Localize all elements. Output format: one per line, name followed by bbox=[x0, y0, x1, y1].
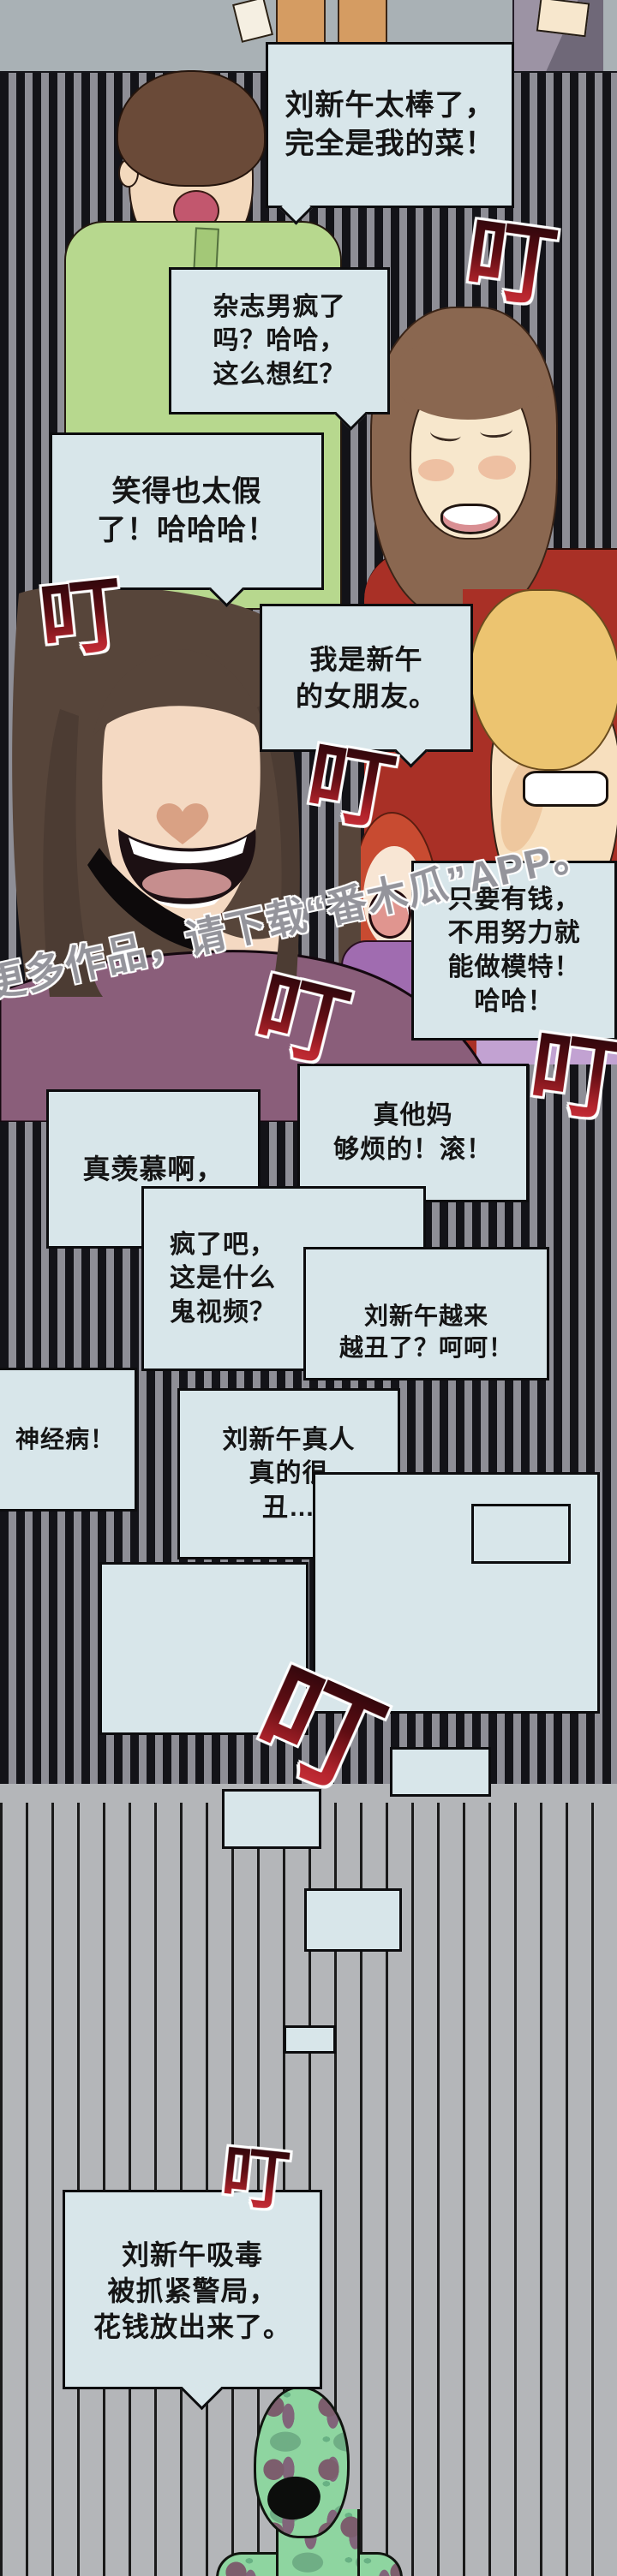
bubble-text-line: 刘新午吸毒 bbox=[122, 2237, 263, 2273]
bubble-text-line: 够烦的！滚！ bbox=[333, 1133, 493, 1167]
bubble-text-line: 越丑了？呵呵！ bbox=[339, 1333, 513, 1364]
ding-stamp-7: 叮 bbox=[219, 2141, 292, 2215]
speech-bubble-10: 神经病！ bbox=[0, 1368, 137, 1512]
ding-stamp-2: 叮 bbox=[36, 573, 127, 664]
blonde-man-smile bbox=[523, 771, 608, 807]
bubble-text-line: 了！哈哈哈！ bbox=[97, 511, 277, 550]
speech-bubble-4: 我是新午 的女朋友。 bbox=[260, 604, 473, 752]
ding-stamp-3: 叮 bbox=[301, 736, 400, 836]
wavy-man-left-blush bbox=[418, 459, 454, 481]
bubble-text-line: 刘新午太棒了， bbox=[285, 86, 495, 125]
empty-bubble-small-1 bbox=[390, 1747, 491, 1797]
bubble-text-line: 这是什么 bbox=[170, 1261, 276, 1296]
wavy-man-right-blush bbox=[478, 456, 516, 480]
green-man-hair bbox=[117, 70, 266, 187]
bubble-text-line: 真羡慕啊， bbox=[82, 1151, 224, 1187]
big-face-tongue bbox=[142, 869, 231, 898]
bubble-text-line: 不用努力就 bbox=[448, 916, 581, 951]
speech-bubble-19: 刘新午吸毒 被抓紧警局， 花钱放出来了。 bbox=[63, 2190, 322, 2389]
bubble-text-line: 能做模特！ bbox=[448, 951, 581, 985]
empty-bubble-tiny bbox=[284, 2025, 336, 2054]
bubble-text-line: 神经病！ bbox=[15, 1424, 115, 1456]
empty-bubble-small-2 bbox=[222, 1789, 321, 1849]
bubble-text-line: 杂志男疯了 bbox=[213, 290, 346, 325]
bubble-text-line: 刘新午越来 bbox=[364, 1301, 488, 1333]
speech-bubble-7: 真他妈 够烦的！滚！ bbox=[297, 1064, 529, 1202]
bubble-text-line: 鬼视频？ bbox=[170, 1296, 276, 1330]
speech-bubble-2: 杂志男疯了 吗？哈哈， 这么想红？ bbox=[169, 267, 390, 414]
bubble-text-line: 哈哈！ bbox=[475, 985, 554, 1019]
bubble-text-line: 的女朋友。 bbox=[296, 678, 437, 714]
bubble-text-line: 这么想红？ bbox=[213, 358, 346, 392]
speech-bubble-9: 刘新午越来 越丑了？呵呵！ bbox=[303, 1247, 549, 1380]
bubble-text-line: 笑得也太假 bbox=[112, 473, 262, 511]
standing-figure-top-right bbox=[512, 0, 603, 71]
bubble-text-line: 花钱放出来了。 bbox=[93, 2309, 291, 2345]
speech-bubble-3: 笑得也太假 了！哈哈哈！ bbox=[50, 432, 324, 590]
bubble-text-line: 刘新午真人 bbox=[223, 1423, 356, 1458]
comic-page: 刘新午太棒了， 完全是我的菜！ 杂志男疯了 吗？哈哈， 这么想红？ 笑得也太假 … bbox=[0, 0, 617, 2576]
empty-bubble-small-3 bbox=[304, 1888, 402, 1952]
ding-stamp-5: 叮 bbox=[524, 1025, 617, 1128]
bubble-text-line: 疯了吧， bbox=[170, 1228, 276, 1262]
speech-bubble-1: 刘新午太棒了， 完全是我的菜！ bbox=[266, 42, 514, 208]
ding-stamp-1: 叮 bbox=[460, 212, 560, 313]
bubble-text-line: 丑… bbox=[262, 1491, 315, 1525]
bubble-text-line: 真他妈 bbox=[374, 1099, 453, 1133]
held-paper bbox=[536, 0, 590, 37]
bubble-text-line: 吗？哈哈， bbox=[213, 324, 346, 358]
empty-bubble-nested-small bbox=[471, 1504, 571, 1564]
character-zombie-figure bbox=[206, 2381, 411, 2576]
bubble-text-line: 完全是我的菜！ bbox=[285, 125, 495, 164]
bubble-text-line: 被抓紧警局， bbox=[107, 2273, 277, 2309]
bubble-text-line: 我是新午 bbox=[309, 641, 422, 677]
